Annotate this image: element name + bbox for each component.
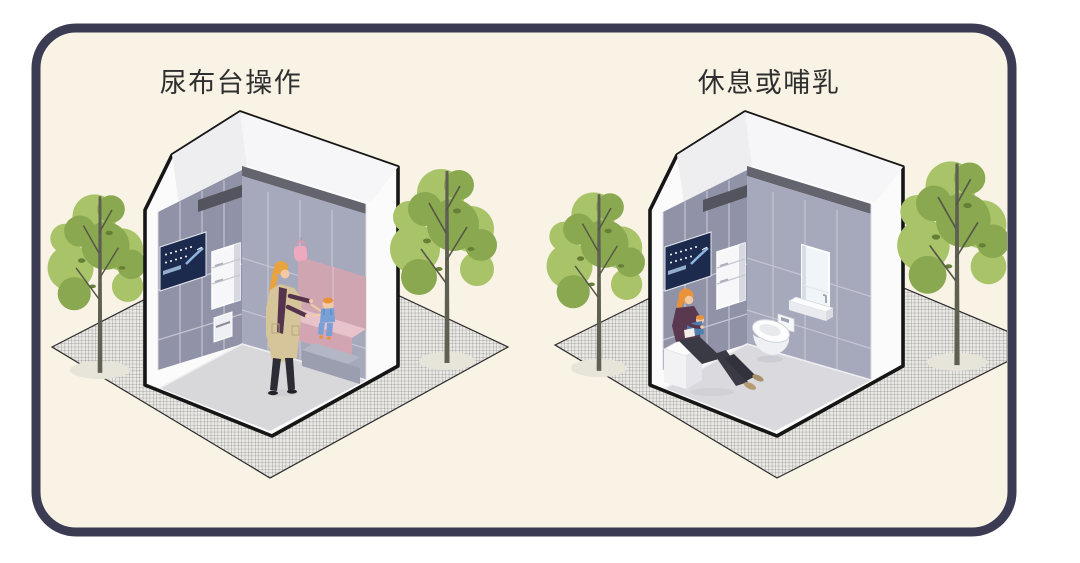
panel-title-diaper: 尿布台操作 (101, 61, 361, 100)
building-left (145, 112, 398, 436)
panel-title-nursing: 休息或哺乳 (639, 61, 899, 100)
illustration-canvas: 尿布台操作 休息或哺乳 (0, 0, 1080, 563)
building-right (650, 112, 903, 436)
